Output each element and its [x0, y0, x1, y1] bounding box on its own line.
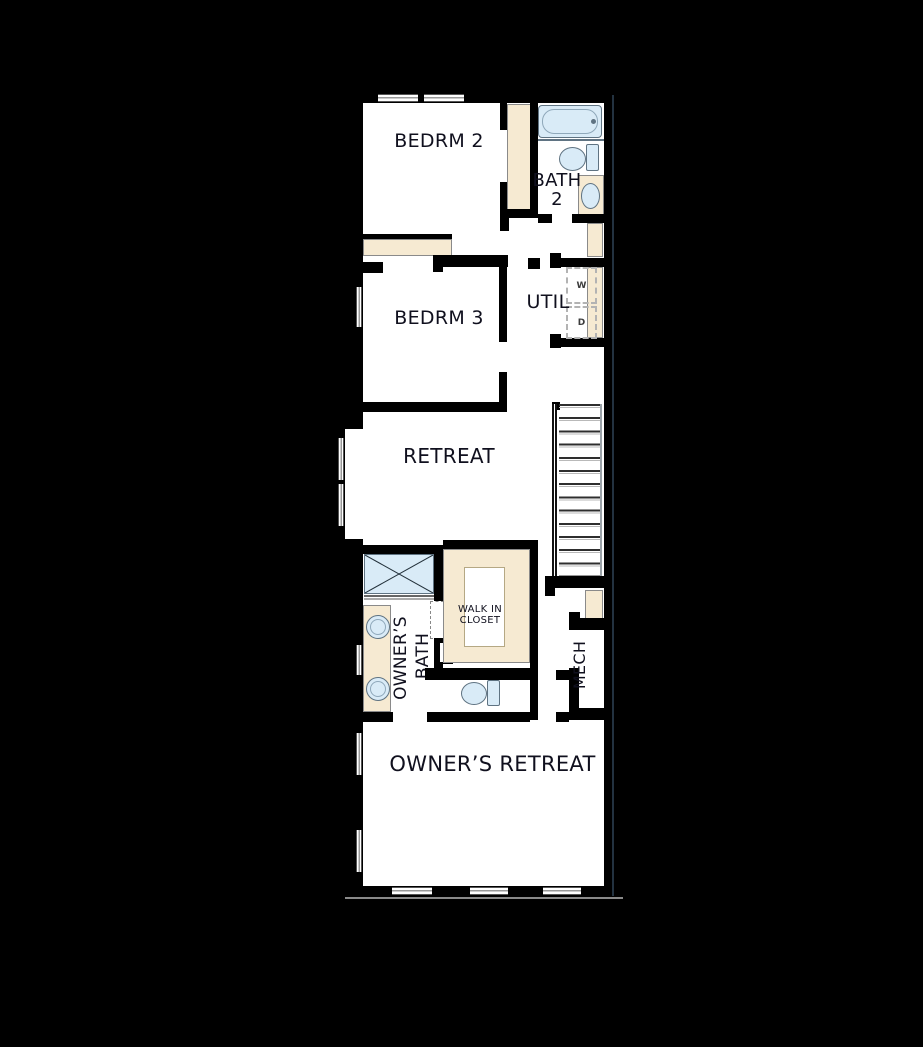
washer-label: W	[577, 281, 587, 291]
bathtub	[538, 105, 602, 138]
bath2-label-line2: 2	[551, 190, 563, 209]
right-edge-shadow	[612, 95, 614, 896]
shower-x-icon	[365, 555, 433, 593]
window	[378, 94, 418, 102]
bedroom3-closet	[363, 239, 452, 256]
linen-shelf	[585, 590, 603, 620]
wall-segment	[554, 576, 604, 588]
wall-segment	[556, 712, 569, 722]
wall-segment	[433, 255, 443, 272]
room-label-owners-retreat: OWNER’S RETREAT	[395, 751, 590, 777]
hall-chase	[587, 223, 603, 257]
window	[338, 438, 344, 480]
room-label-retreat: RETREAT	[397, 445, 501, 469]
window	[356, 645, 362, 675]
room-label-walk-in-closet: WALK IN CLOSET	[451, 601, 509, 631]
window	[424, 94, 464, 102]
wall-segment	[433, 255, 508, 267]
wall-segment	[500, 103, 507, 130]
window	[356, 830, 362, 872]
stairs	[559, 404, 601, 576]
wall-segment	[355, 93, 363, 427]
sink-basin	[370, 619, 386, 635]
room-label-owners-bath-line1: OWNER’S	[391, 593, 411, 723]
room-label-bath2: BATH 2	[528, 166, 586, 214]
sink-basin	[370, 681, 386, 697]
foundation-edge-line	[345, 897, 623, 899]
vanity-sink	[366, 677, 390, 701]
wall-segment	[355, 545, 445, 554]
stair-railing	[552, 404, 557, 576]
toilet-bowl	[461, 682, 487, 705]
wall-segment	[443, 540, 538, 549]
tub-faucet-icon	[591, 119, 596, 124]
room-label-mech: MECH	[570, 625, 590, 705]
wall-segment	[359, 402, 507, 412]
wall-segment	[538, 214, 552, 223]
wic-label-line2: CLOSET	[460, 616, 501, 627]
wall-segment	[355, 262, 383, 273]
wall-segment	[550, 338, 604, 347]
shower	[364, 554, 434, 594]
vanity-sink	[366, 615, 390, 639]
room-label-owners-bath-line2: BATH	[413, 591, 433, 721]
window	[356, 733, 362, 775]
window	[356, 287, 362, 327]
wall-segment	[545, 576, 555, 596]
stair-stringer-line	[600, 404, 602, 576]
wall-segment	[569, 708, 605, 720]
wall-segment	[499, 372, 507, 404]
tub-edge-line	[538, 139, 604, 141]
wall-segment	[528, 258, 540, 269]
wall-segment	[500, 218, 509, 231]
wall-segment	[499, 267, 507, 342]
floor-plan: BEDRM 2 BATH 2 W D UTIL BEDRM 3 RETREAT	[0, 0, 923, 1047]
wall-segment	[500, 182, 507, 210]
bathtub-rim	[542, 109, 598, 134]
dryer-label: D	[578, 318, 585, 328]
window	[392, 887, 432, 895]
toilet-tank	[487, 680, 500, 706]
wall-segment	[427, 712, 530, 722]
wall-segment	[434, 545, 443, 601]
wall-segment	[425, 668, 538, 680]
room-label-bedrm3: BEDRM 3	[389, 306, 489, 330]
wall-segment	[572, 214, 604, 223]
window	[543, 887, 581, 895]
room-label-bedrm2: BEDRM 2	[389, 129, 489, 153]
wall-segment	[604, 93, 612, 896]
wall-segment	[556, 670, 569, 680]
bath2-label-line1: BATH	[533, 171, 582, 190]
toilet-tank	[586, 144, 599, 171]
window	[338, 484, 344, 526]
wall-segment	[550, 258, 604, 267]
wall-segment	[355, 712, 393, 722]
room-label-util: UTIL	[522, 292, 574, 312]
wall-segment	[530, 540, 538, 720]
window	[470, 887, 508, 895]
